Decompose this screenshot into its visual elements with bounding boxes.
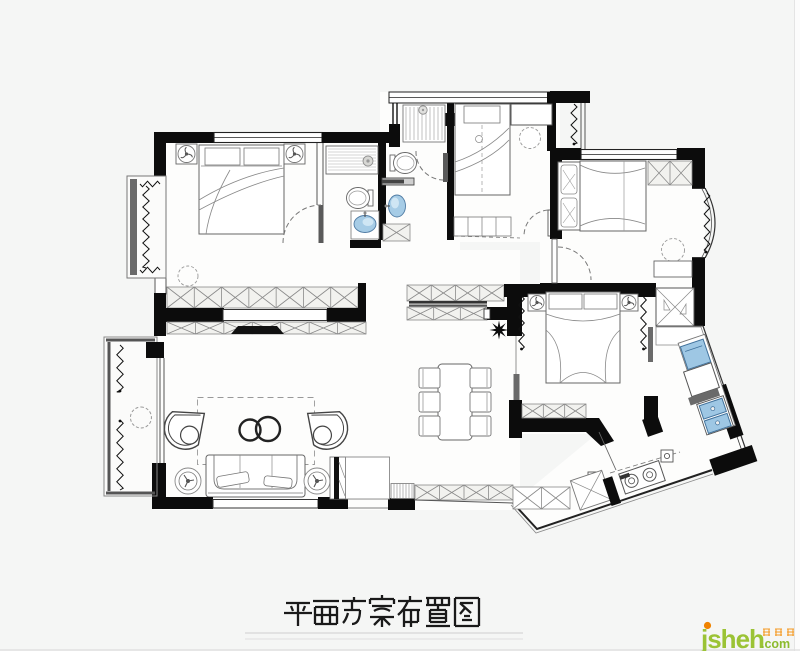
svg-text:.com: .com <box>761 637 790 651</box>
